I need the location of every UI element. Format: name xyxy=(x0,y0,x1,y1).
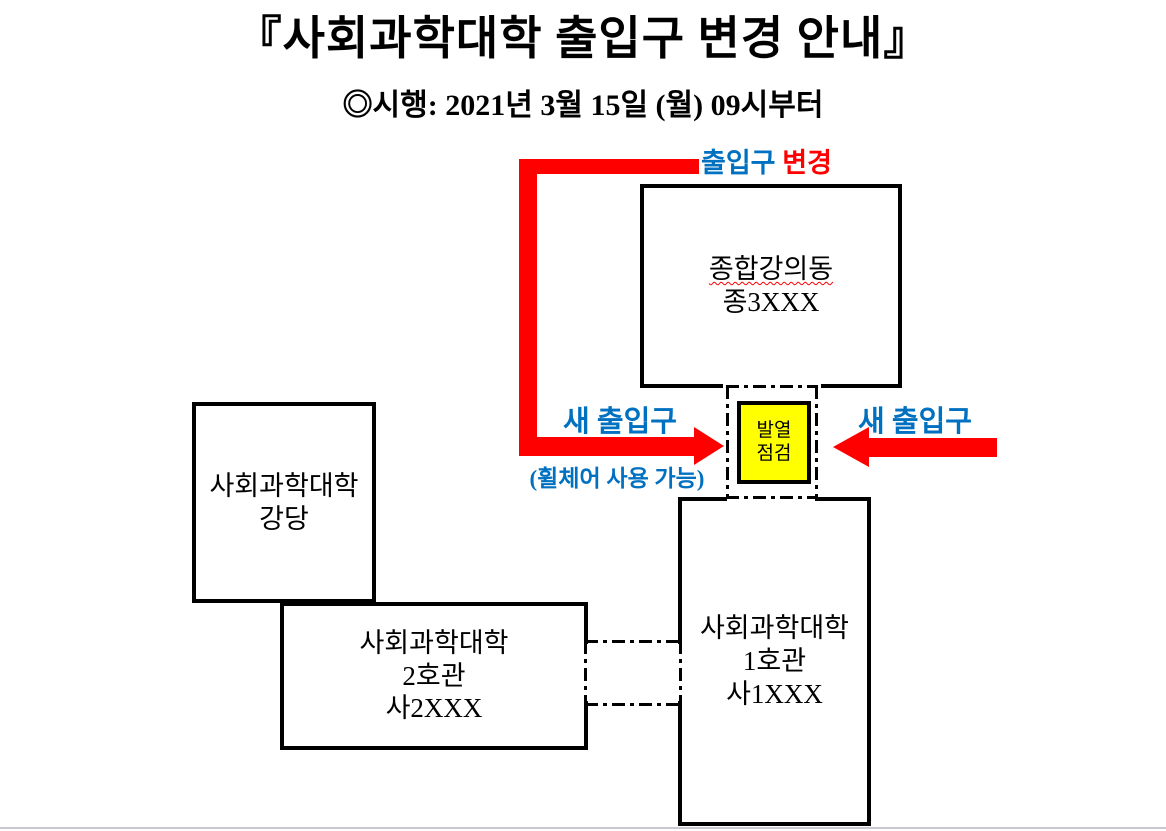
building-1-name: 사회과학대학 xyxy=(700,612,849,645)
fever-check-line2: 점검 xyxy=(757,443,792,466)
passage-horizontal-dash-right xyxy=(679,641,682,705)
building-1-sub: 1호관 xyxy=(743,645,806,678)
building-2: 사회과학대학 2호관 사2XXX xyxy=(280,602,588,750)
building-2-name: 사회과학대학 xyxy=(359,627,508,660)
building-2-rooms: 사2XXX xyxy=(386,692,483,725)
passage-horizontal-dash-bottom xyxy=(585,703,680,706)
building-lecture-hall: 종합강의동 종3XXX xyxy=(640,184,902,388)
entrance-change-label-red: 변경 xyxy=(782,148,832,178)
passage-vertical-dash-left xyxy=(726,386,729,499)
entrance-change-label-blue: 출입구 xyxy=(701,148,776,178)
building-lecture-hall-rooms: 종3XXX xyxy=(723,286,820,319)
bottom-divider xyxy=(0,827,1166,829)
new-entrance-label-right: 새 출입구 xyxy=(840,398,990,440)
building-lecture-hall-name: 종합강의동 xyxy=(709,254,833,284)
entrance-change-arrow-vertical-bar xyxy=(519,159,537,456)
new-entrance-label-left: 새 출입구 xyxy=(545,398,695,440)
building-auditorium-sub: 강당 xyxy=(259,503,309,536)
building-2-sub: 2호관 xyxy=(402,660,465,693)
entrance-change-arrow-top-bar xyxy=(519,159,699,174)
building-auditorium-name: 사회과학대학 xyxy=(209,470,358,503)
wheelchair-accessible-note: (휠체어 사용 가능) xyxy=(512,459,722,493)
entrance-change-label: 출입구 변경 xyxy=(701,141,832,180)
passage-vertical-dash-top xyxy=(726,385,818,388)
page-title: 『사회과학대학 출입구 변경 안내』 xyxy=(0,2,1166,68)
entrance-change-notice-diagram: 『사회과학대학 출입구 변경 안내』 ◎시행: 2021년 3월 15일 (월)… xyxy=(0,0,1166,831)
passage-vertical-dash-bottom xyxy=(726,496,818,499)
building-auditorium: 사회과학대학 강당 xyxy=(192,402,376,603)
passage-vertical-dash-right xyxy=(815,386,818,499)
building-1-rooms: 사1XXX xyxy=(726,678,823,711)
building-1: 사회과학대학 1호관 사1XXX xyxy=(678,497,871,826)
fever-check-box: 발열 점검 xyxy=(737,401,811,484)
effective-date-subtitle: ◎시행: 2021년 3월 15일 (월) 09시부터 xyxy=(0,80,1166,124)
passage-horizontal-dash-top xyxy=(585,640,680,643)
fever-check-line1: 발열 xyxy=(757,420,792,443)
new-entrance-arrow-right-body xyxy=(869,438,997,457)
passage-horizontal-dash-left xyxy=(584,641,587,705)
